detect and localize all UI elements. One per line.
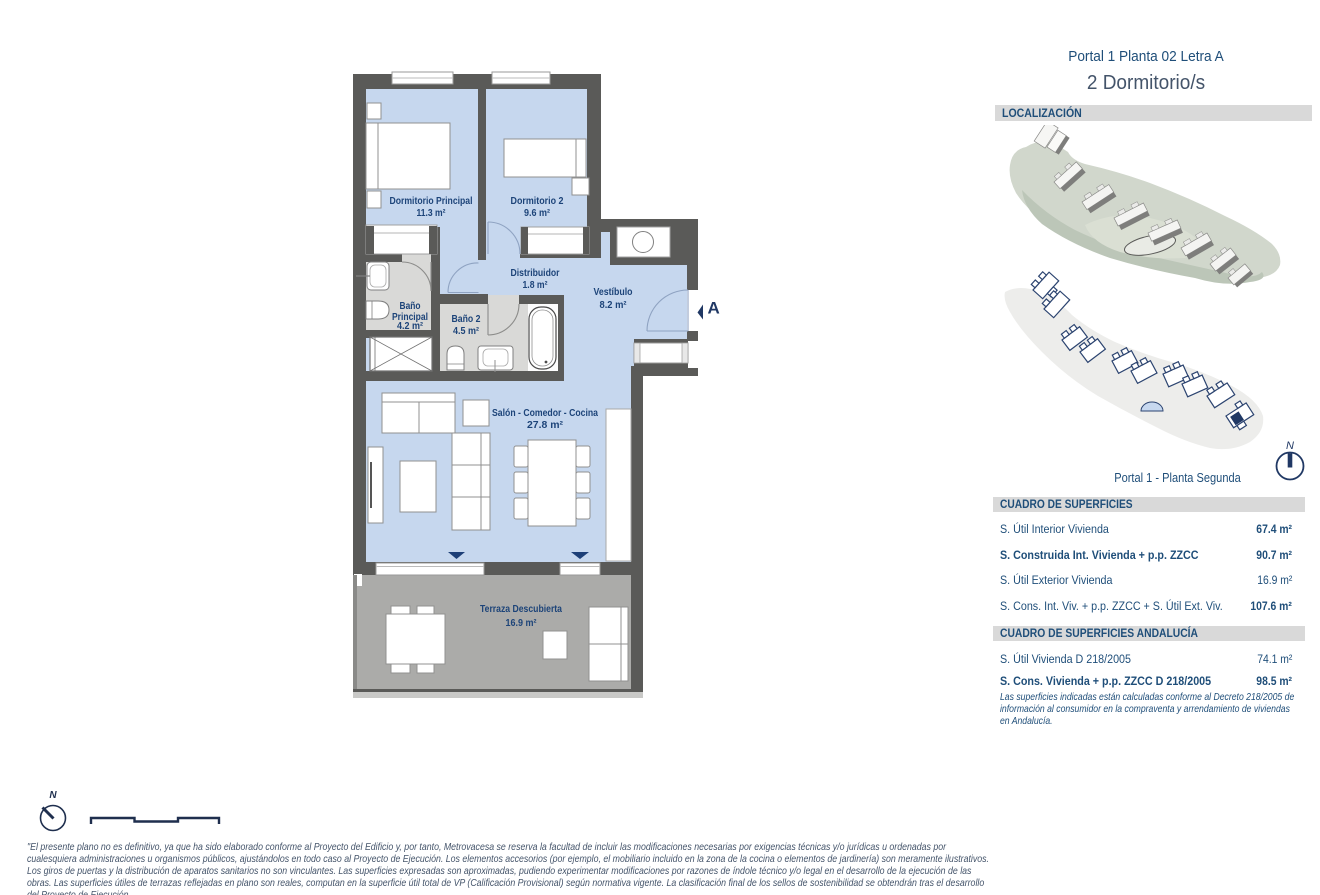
svg-text:A: A — [708, 299, 720, 318]
svg-text:N: N — [49, 790, 57, 801]
svg-text:27.8 m²: 27.8 m² — [527, 419, 563, 431]
svg-text:Distribuidor: Distribuidor — [511, 267, 560, 279]
svg-text:9.6 m²: 9.6 m² — [524, 207, 550, 219]
svg-text:11.3 m²: 11.3 m² — [417, 207, 446, 219]
svg-text:Vestíbulo: Vestíbulo — [594, 286, 633, 298]
svg-text:Baño: Baño — [400, 301, 421, 312]
svg-text:Dormitorio Principal: Dormitorio Principal — [390, 195, 473, 207]
svg-text:4.2 m²: 4.2 m² — [397, 321, 424, 332]
svg-text:16.9 m²: 16.9 m² — [506, 617, 537, 629]
svg-text:Baño 2: Baño 2 — [452, 313, 481, 325]
svg-text:8.2 m²: 8.2 m² — [600, 299, 627, 311]
svg-text:N: N — [1286, 440, 1294, 452]
svg-text:Terraza Descubierta: Terraza Descubierta — [480, 603, 562, 615]
svg-text:4.5 m²: 4.5 m² — [453, 325, 479, 337]
svg-text:Dormitorio 2: Dormitorio 2 — [511, 195, 564, 207]
svg-text:Salón - Comedor - Cocina: Salón - Comedor - Cocina — [492, 407, 598, 419]
svg-text:1.8 m²: 1.8 m² — [523, 279, 548, 291]
